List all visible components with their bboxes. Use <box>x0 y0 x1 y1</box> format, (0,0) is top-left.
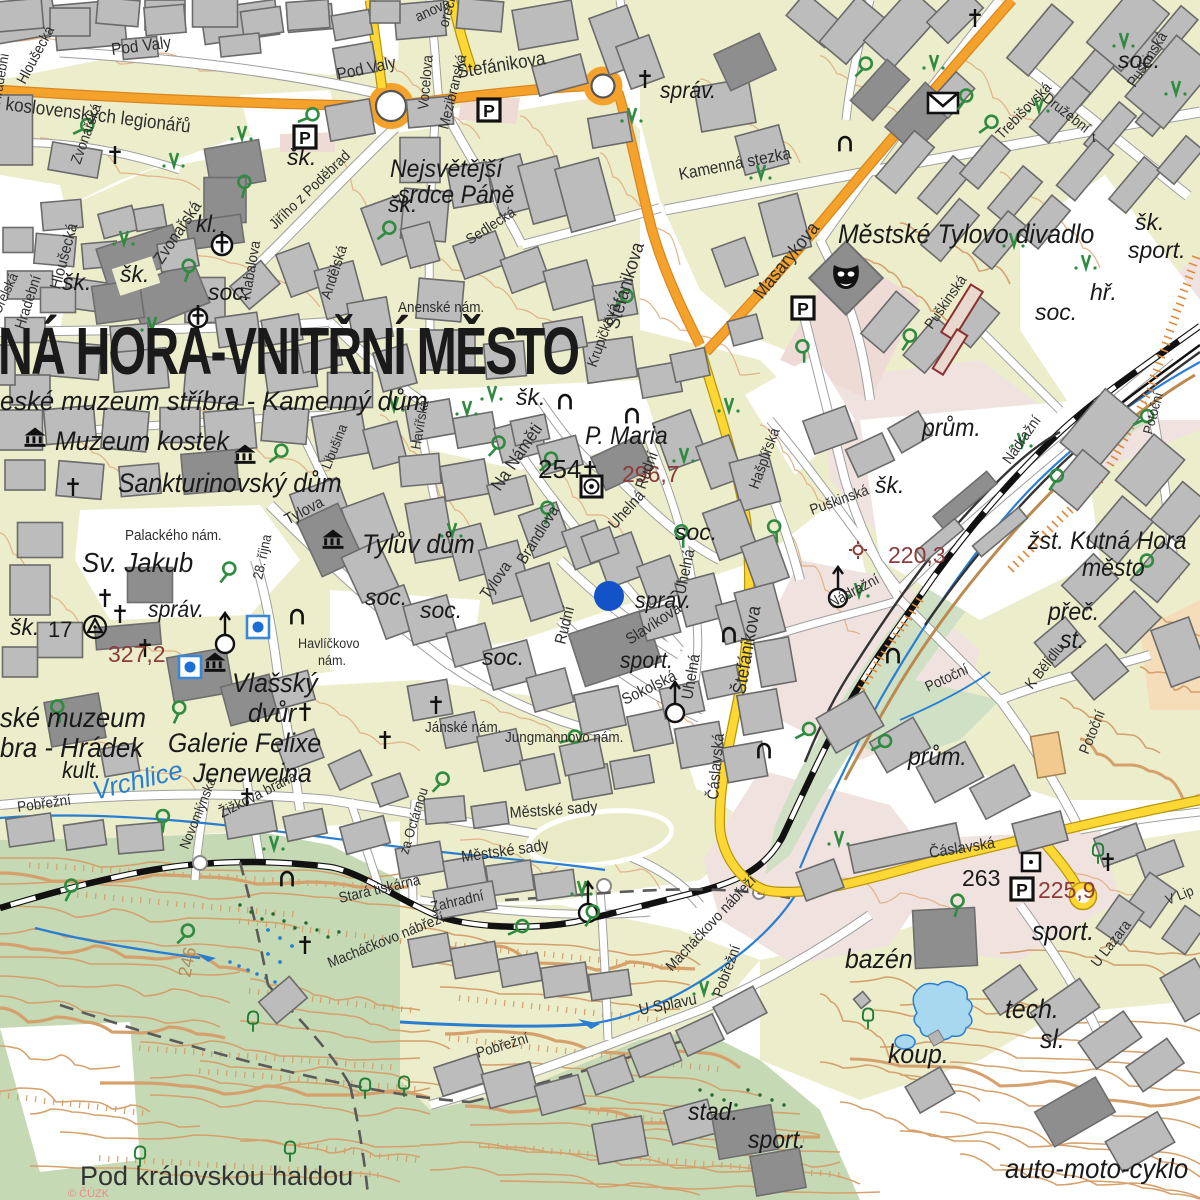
svg-text:správ.: správ. <box>148 596 204 622</box>
svg-text:Pod královskou haldou: Pod královskou haldou <box>80 1161 353 1191</box>
svg-text:P: P <box>1016 880 1028 900</box>
svg-text:P: P <box>797 299 809 319</box>
svg-text:Jánské nám.: Jánské nám. <box>425 719 501 736</box>
svg-text:sport.: sport. <box>1032 917 1094 946</box>
svg-text:hř.: hř. <box>1090 279 1117 305</box>
svg-text:tech.: tech. <box>1005 995 1059 1024</box>
svg-text:sl.: sl. <box>1040 1025 1065 1054</box>
svg-text:Nejsvětější: Nejsvětější <box>390 155 505 183</box>
svg-text:dvůr: dvůr <box>248 699 298 728</box>
svg-text:NÁ HORA-VNITŘNÍ MĚSTO: NÁ HORA-VNITŘNÍ MĚSTO <box>0 312 578 389</box>
svg-text:koup.: koup. <box>888 1040 949 1069</box>
svg-text:auto-moto-cyklo: auto-moto-cyklo <box>1005 1153 1188 1184</box>
svg-text:šk.: šk. <box>1135 209 1164 235</box>
svg-text:šk.: šk. <box>10 614 39 640</box>
svg-text:Anenské nám.: Anenské nám. <box>398 299 484 316</box>
svg-text:soc.: soc. <box>482 644 524 670</box>
svg-text:sport.: sport. <box>748 1126 806 1154</box>
svg-text:17: 17 <box>48 617 72 642</box>
svg-text:263: 263 <box>962 865 1000 891</box>
svg-text:Sv. Jakub: Sv. Jakub <box>82 547 193 578</box>
svg-text:Tylův dům: Tylův dům <box>362 530 475 559</box>
svg-text:327,2: 327,2 <box>108 641 166 667</box>
svg-text:Galerie Felixe: Galerie Felixe <box>168 729 321 758</box>
svg-text:přeč.: přeč. <box>1047 598 1099 626</box>
svg-text:Vlašský: Vlašský <box>232 669 320 698</box>
svg-text:Muzeum kostek: Muzeum kostek <box>55 427 231 456</box>
svg-text:prům.: prům. <box>907 743 967 771</box>
svg-text:šk.: šk. <box>120 261 149 287</box>
svg-text:© ČÚZK: © ČÚZK <box>68 1187 110 1200</box>
svg-text:šk.: šk. <box>875 472 904 498</box>
svg-text:soc.: soc. <box>1035 299 1077 325</box>
svg-text:Palackého nám.: Palackého nám. <box>125 527 222 544</box>
svg-text:nám.: nám. <box>318 652 346 668</box>
svg-text:šk.: šk. <box>516 384 545 410</box>
svg-text:Sankturinovský dům: Sankturinovský dům <box>118 469 342 498</box>
svg-text:Městské Tylovo divadlo: Městské Tylovo divadlo <box>838 220 1094 249</box>
svg-text:220,3: 220,3 <box>888 542 946 568</box>
svg-text:město: město <box>1082 554 1145 582</box>
svg-text:Havlíčkovo: Havlíčkovo <box>298 635 360 651</box>
svg-text:správ.: správ. <box>660 77 716 103</box>
svg-text:254: 254 <box>538 454 581 484</box>
svg-text:prům.: prům. <box>921 414 981 442</box>
svg-text:ské muzeum: ské muzeum <box>0 702 146 733</box>
svg-text:sport.: sport. <box>1128 237 1186 263</box>
svg-text:žst. Kutná Hora: žst. Kutná Hora <box>1027 527 1186 555</box>
svg-text:bazén: bazén <box>845 945 913 974</box>
svg-text:Jungmannovo nám.: Jungmannovo nám. <box>505 729 623 746</box>
svg-text:225,9: 225,9 <box>1038 877 1096 903</box>
svg-text:soc.: soc. <box>365 584 407 610</box>
svg-text:šk.: šk. <box>287 144 316 170</box>
svg-text:P: P <box>483 101 495 121</box>
svg-text:šk.: šk. <box>388 191 417 217</box>
svg-text:eské muzeum stříbra - Kamenný: eské muzeum stříbra - Kamenný dům <box>0 385 428 416</box>
svg-text:P. Maria: P. Maria <box>585 422 668 450</box>
svg-text:stad.: stad. <box>688 1098 738 1126</box>
svg-text:t: t <box>1092 129 1096 145</box>
svg-text:soc.: soc. <box>675 519 717 545</box>
svg-text:soc.: soc. <box>420 597 462 623</box>
